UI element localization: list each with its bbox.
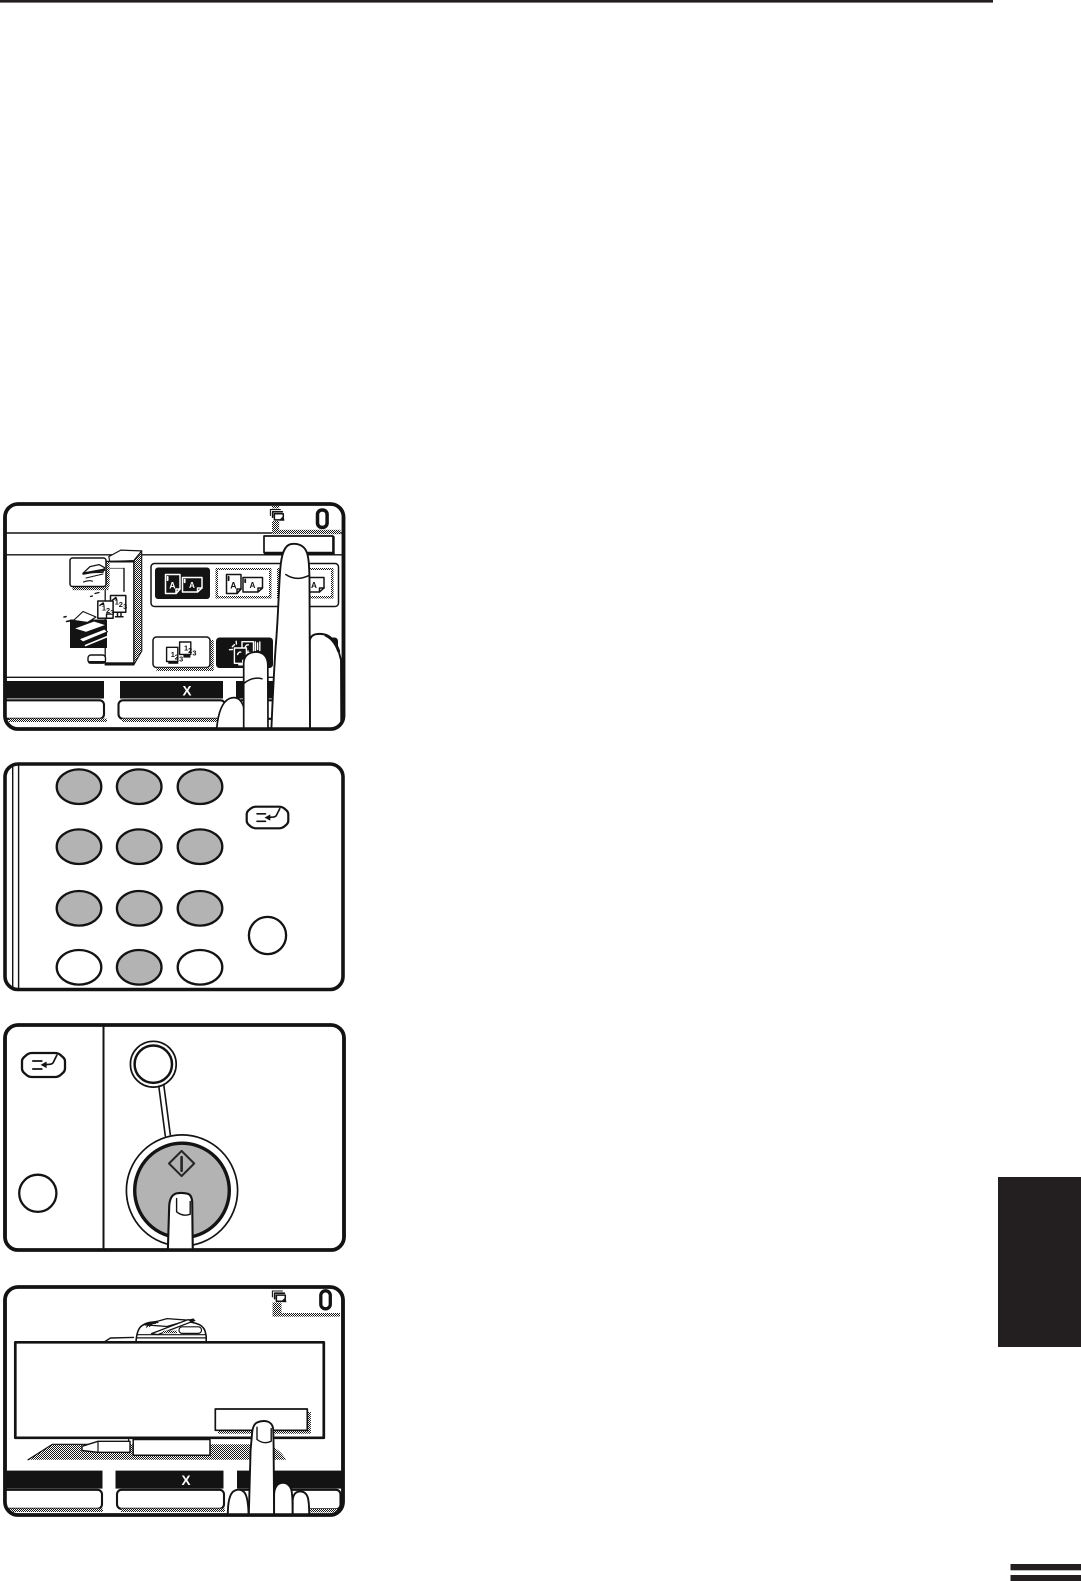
svg-text:3: 3 — [179, 655, 183, 664]
svg-text:A: A — [311, 581, 317, 590]
svg-text:X: X — [183, 683, 192, 698]
svg-text:A: A — [250, 581, 256, 590]
svg-text:A: A — [230, 581, 237, 591]
svg-text:A: A — [189, 581, 195, 590]
svg-text:3: 3 — [123, 602, 127, 611]
svg-text:3: 3 — [110, 608, 114, 617]
svg-text:3: 3 — [192, 648, 196, 657]
svg-text:A: A — [169, 581, 176, 591]
svg-text:X: X — [182, 1473, 191, 1488]
